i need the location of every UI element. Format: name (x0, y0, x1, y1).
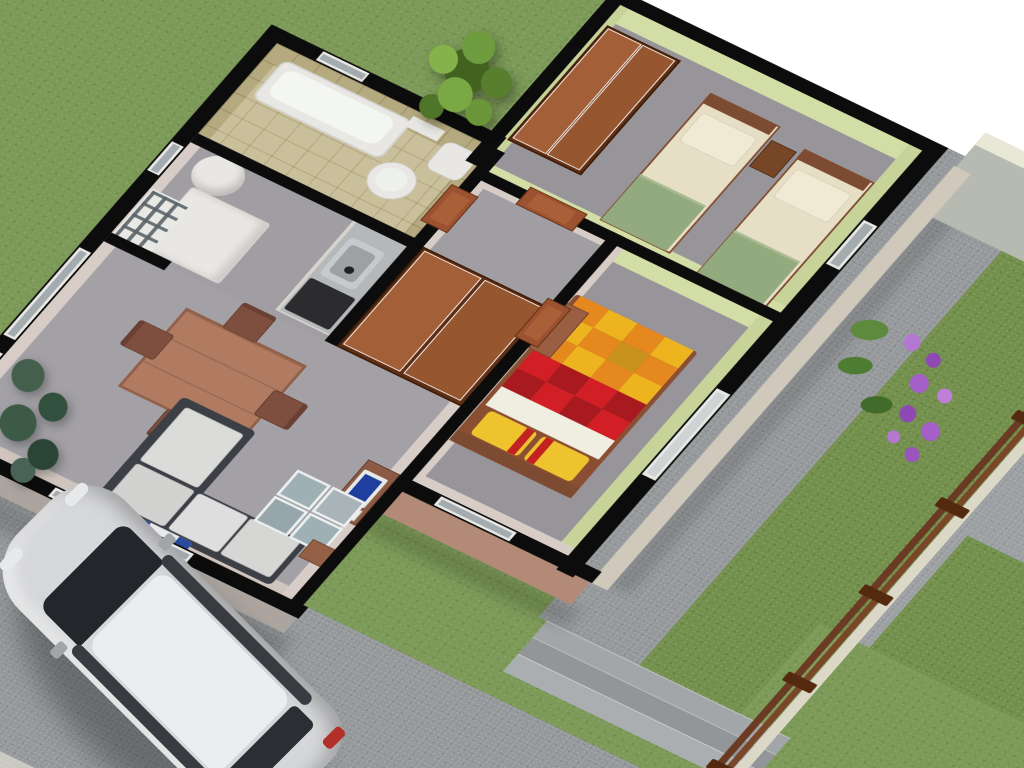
purple-flower-bush (834, 298, 976, 476)
render-stage (0, 0, 1024, 768)
ornamental-bush (408, 18, 526, 136)
dark-shrub (0, 336, 88, 494)
